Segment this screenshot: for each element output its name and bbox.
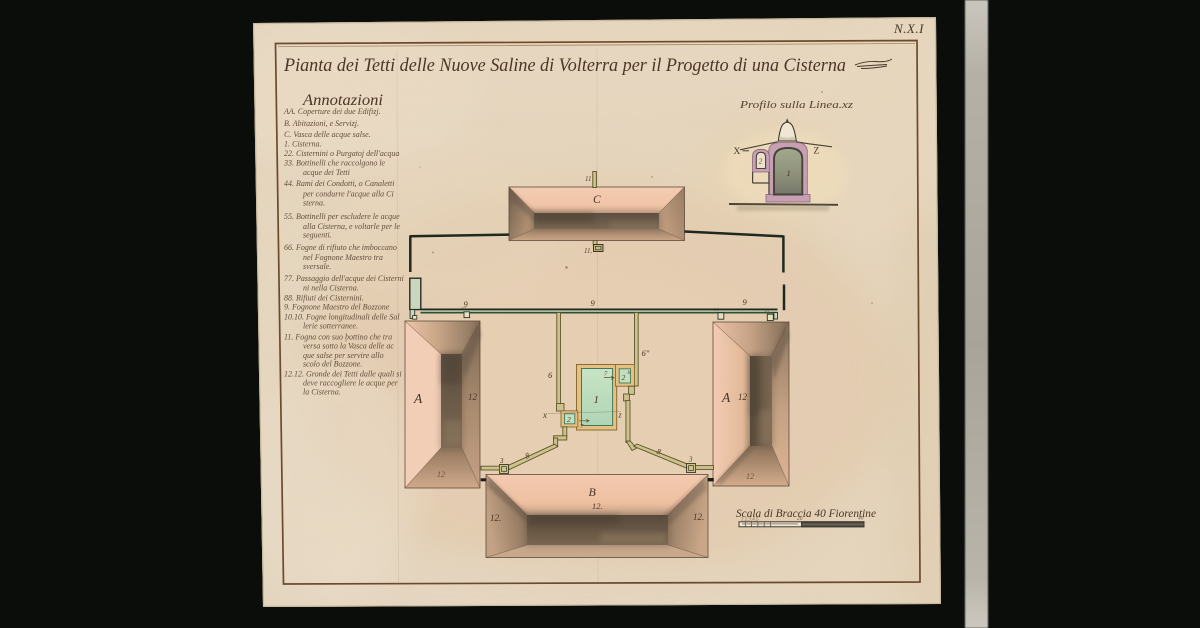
svg-text:6″: 6″	[642, 348, 650, 358]
svg-text:la Cisterna.: la Cisterna.	[303, 388, 341, 397]
svg-text:66. Fogne di rifiuto che imboc: 66. Fogne di rifiuto che imboccano	[284, 243, 397, 252]
svg-text:11: 11	[585, 175, 591, 183]
svg-text:10: 10	[461, 308, 467, 313]
svg-text:sterna.: sterna.	[303, 199, 325, 208]
svg-text:A: A	[413, 391, 423, 406]
svg-text:B: B	[589, 485, 597, 499]
svg-text:C: C	[593, 194, 601, 206]
svg-text:lerie sotterranee.: lerie sotterranee.	[303, 322, 358, 331]
svg-text:X: X	[734, 147, 741, 157]
svg-text:per condurre l'acque alla Ci: per condurre l'acque alla Ci	[302, 190, 394, 199]
svg-text:versa sotto la Vasca delle ac: versa sotto la Vasca delle ac	[303, 342, 394, 351]
svg-text:nel Fognone Maestro tra: nel Fognone Maestro tra	[303, 253, 383, 262]
svg-text:12.12. Gronde dei Tetti dalle: 12.12. Gronde dei Tetti dalle quali si	[284, 370, 402, 379]
svg-text:2: 2	[622, 373, 626, 382]
svg-text:12: 12	[468, 392, 478, 402]
svg-text:3: 3	[688, 456, 693, 464]
svg-text:1: 1	[594, 394, 600, 406]
svg-text:scolo del Bozzone.: scolo del Bozzone.	[303, 360, 362, 369]
svg-text:10.10. Fogne longitudinali del: 10.10. Fogne longitudinali delle Sal	[284, 313, 400, 322]
svg-text:10: 10	[764, 310, 770, 315]
svg-text:12.: 12.	[592, 501, 603, 511]
svg-text:Profilo sulla Linea.xz: Profilo sulla Linea.xz	[739, 99, 854, 111]
svg-text:2: 2	[567, 415, 571, 424]
svg-text:1. Cisterna.: 1. Cisterna.	[284, 140, 322, 149]
svg-text:C. Vasca delle acque salse.: C. Vasca delle acque salse.	[284, 130, 371, 139]
svg-text:12.: 12.	[693, 512, 704, 522]
svg-text:N.X.I: N.X.I	[893, 21, 924, 36]
svg-text:Z: Z	[814, 147, 820, 157]
svg-text:B. Abitazioni, e Servizj.: B. Abitazioni, e Servizj.	[284, 119, 359, 128]
svg-text:Pianta dei Tetti delle Nuove S: Pianta dei Tetti delle Nuove Saline di V…	[283, 55, 846, 76]
svg-text:12: 12	[437, 470, 445, 479]
svg-text:AA. Coperture dei due Edifizj.: AA. Coperture dei due Edifizj.	[283, 107, 381, 116]
svg-text:22. Cisternini o Purgatoj dell: 22. Cisternini o Purgatoj dell'acqua	[284, 149, 399, 158]
svg-text:x: x	[542, 410, 547, 420]
svg-text:12: 12	[746, 472, 754, 481]
svg-text:3: 3	[499, 457, 504, 465]
svg-text:55. Bottinelli per escludere l: 55. Bottinelli per escludere le acque	[284, 212, 400, 221]
svg-text:A: A	[721, 390, 731, 405]
svg-text:10: 10	[714, 308, 720, 313]
svg-text:deve raccogliere le acque per: deve raccogliere le acque per	[303, 379, 399, 388]
svg-text:77. Passaggio dell'acque dei C: 77. Passaggio dell'acque dei Cisterni	[284, 274, 404, 283]
svg-text:acque dei Tetti: acque dei Tetti	[303, 168, 350, 177]
svg-text:1.2.3.4.5: 1.2.3.4.5	[741, 518, 759, 523]
svg-text:seguenti.: seguenti.	[303, 231, 332, 240]
svg-text:20: 20	[797, 516, 803, 522]
svg-text:12: 12	[738, 392, 748, 402]
svg-text:12.: 12.	[490, 513, 501, 523]
svg-text:2: 2	[759, 158, 763, 166]
svg-text:33. Bottinelli che raccolgono: 33. Bottinelli che raccolgono le	[283, 159, 386, 168]
svg-text:ni nella Cisterna.: ni nella Cisterna.	[303, 284, 359, 293]
svg-text:9. Fognone Maestro del Bozzone: 9. Fognone Maestro del Bozzone	[284, 303, 390, 312]
svg-text:11. Fogna con suo bottino che: 11. Fogna con suo bottino che tra	[284, 333, 392, 342]
svg-text:sversale.: sversale.	[303, 262, 331, 271]
svg-text:88. Rifiuti dei Cisternini.: 88. Rifiuti dei Cisternini.	[284, 294, 364, 303]
svg-text:40: 40	[858, 515, 864, 522]
svg-text:11.: 11.	[584, 247, 592, 255]
svg-text:44. Rami dei Condotti, o Canal: 44. Rami dei Condotti, o Canaletti	[284, 179, 394, 188]
svg-text:1: 1	[787, 168, 791, 178]
